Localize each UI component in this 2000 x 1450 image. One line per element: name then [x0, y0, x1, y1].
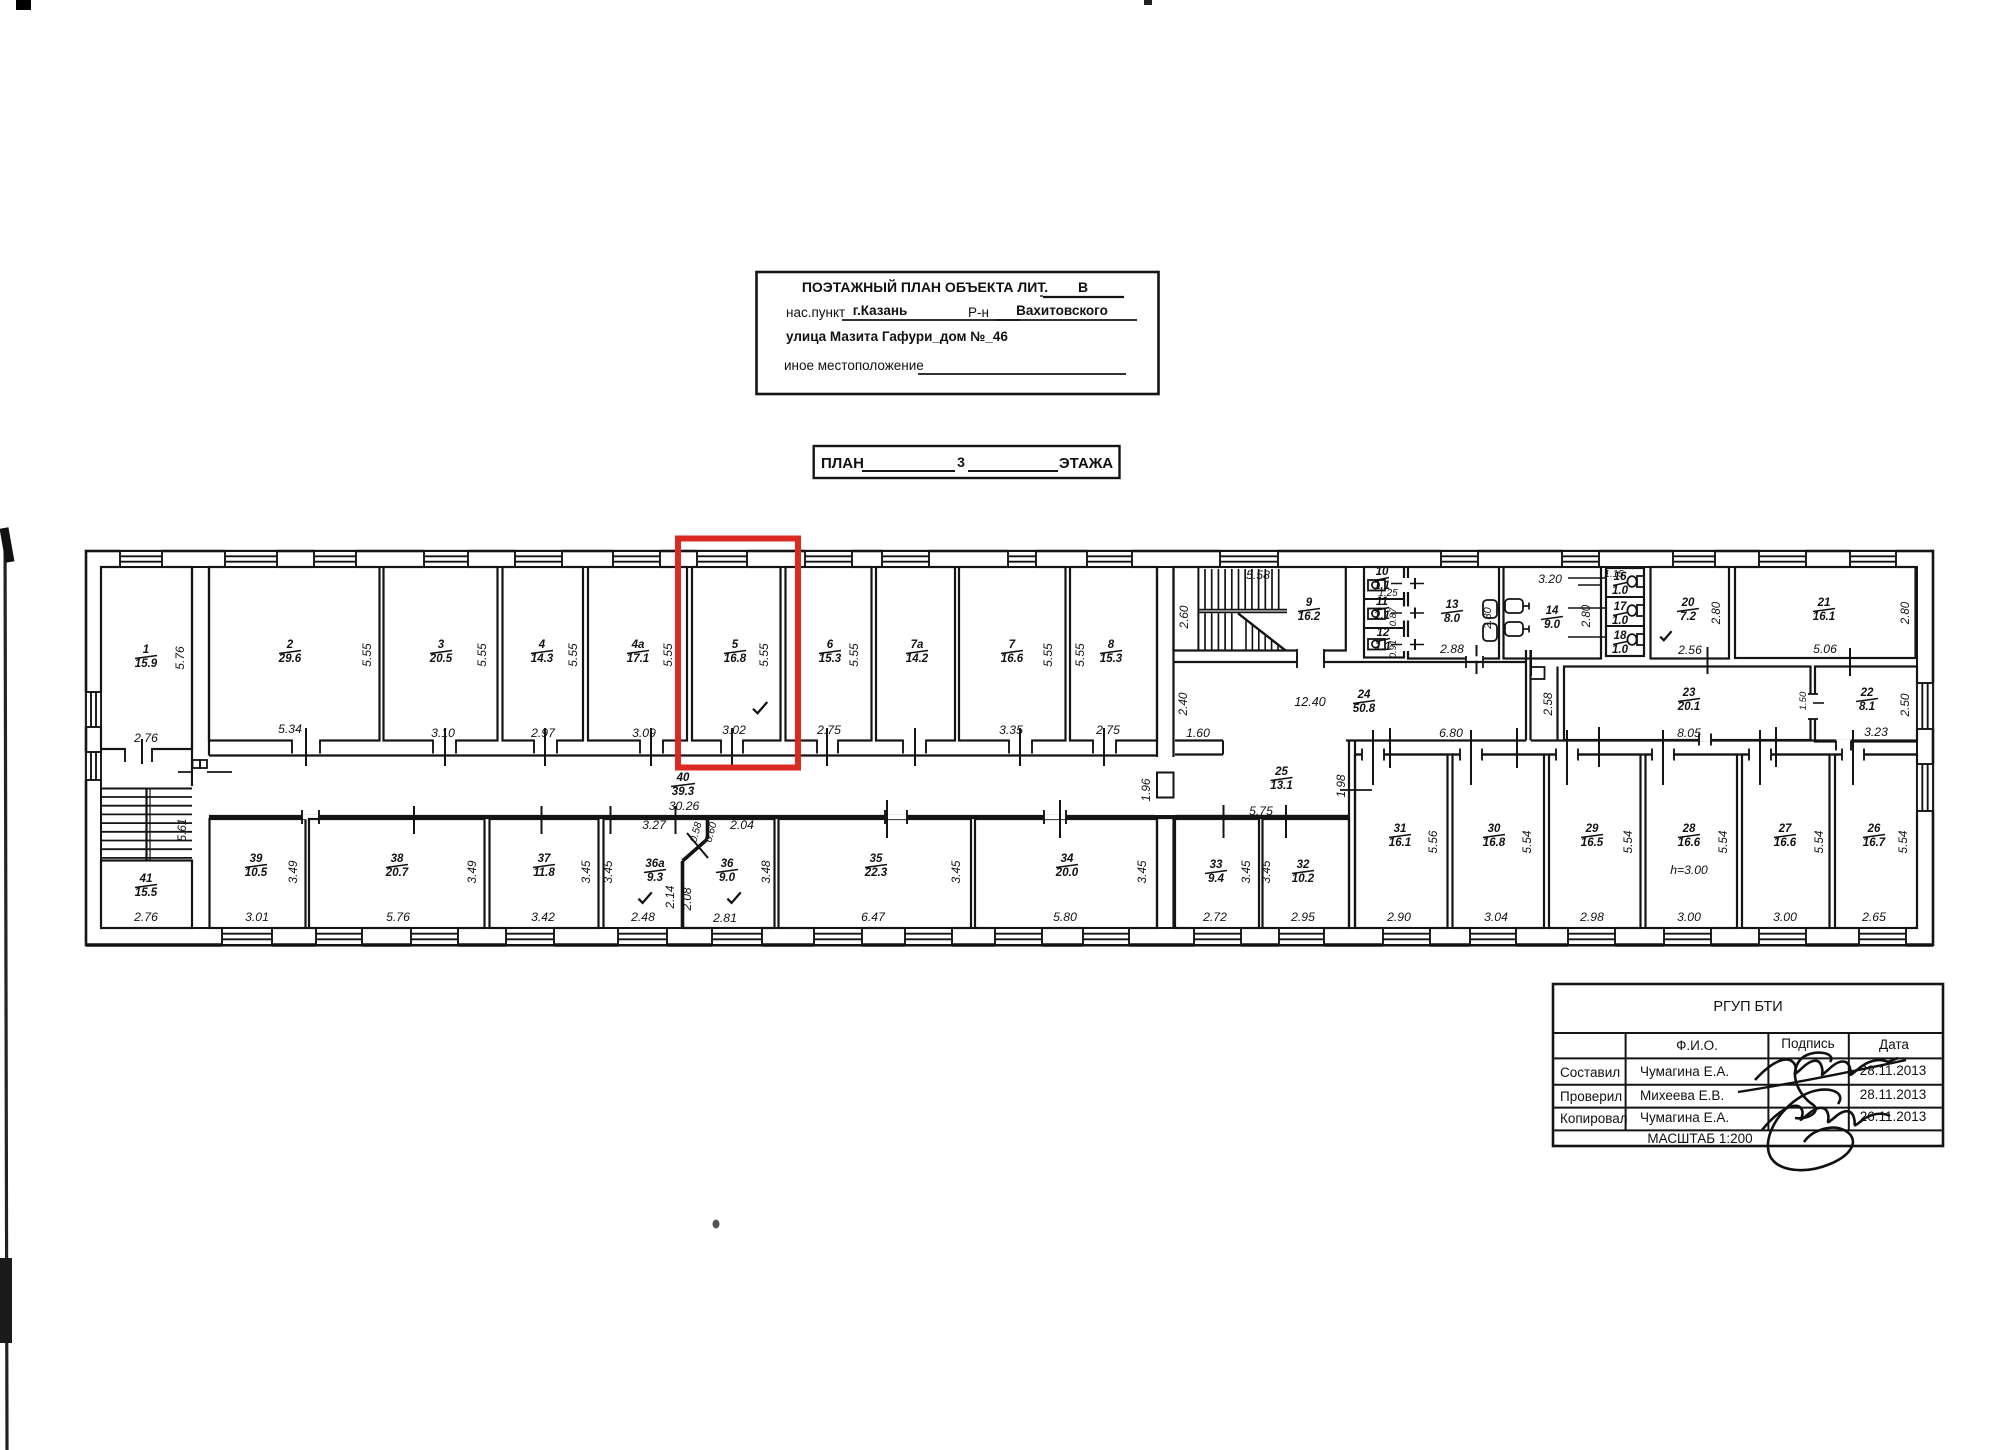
svg-text:8.05: 8.05 [1677, 726, 1701, 740]
svg-text:2.76: 2.76 [133, 731, 158, 745]
svg-text:6: 6 [827, 639, 834, 651]
svg-text:Вахитовского: Вахитовского [1016, 303, 1108, 318]
svg-text:16.1: 16.1 [1813, 611, 1835, 623]
svg-text:Михеева Е.В.: Михеева Е.В. [1640, 1088, 1724, 1103]
svg-text:5.54: 5.54 [1896, 830, 1910, 853]
svg-text:2.81: 2.81 [712, 911, 737, 925]
svg-text:29.6: 29.6 [278, 653, 302, 665]
svg-text:5.80: 5.80 [1053, 910, 1077, 924]
svg-text:20: 20 [1681, 597, 1695, 609]
svg-text:28.11.2013: 28.11.2013 [1860, 1087, 1927, 1102]
svg-text:10.5: 10.5 [245, 867, 268, 879]
svg-text:Ф.И.О.: Ф.И.О. [1676, 1038, 1718, 1053]
svg-text:23: 23 [1682, 687, 1696, 699]
svg-text:5.34: 5.34 [278, 722, 302, 736]
svg-text:1.0: 1.0 [1612, 644, 1629, 656]
svg-text:9.3: 9.3 [647, 872, 664, 884]
svg-text:11: 11 [1376, 596, 1388, 608]
svg-text:7а: 7а [911, 639, 924, 651]
svg-text:3: 3 [438, 639, 445, 651]
svg-text:ЭТАЖА: ЭТАЖА [1059, 455, 1113, 472]
svg-text:иное местоположение: иное местоположение [784, 358, 924, 373]
svg-text:40: 40 [676, 772, 690, 784]
svg-text:9.0: 9.0 [1544, 619, 1561, 631]
svg-text:ПЛАН: ПЛАН [821, 455, 864, 472]
svg-text:3.45: 3.45 [1259, 860, 1273, 883]
svg-text:16.7: 16.7 [1863, 837, 1886, 849]
svg-text:10.2: 10.2 [1292, 873, 1315, 885]
svg-text:16.6: 16.6 [1774, 837, 1797, 849]
svg-text:2.48: 2.48 [630, 910, 655, 924]
svg-text:2.04: 2.04 [729, 818, 754, 832]
svg-text:3.45: 3.45 [601, 860, 615, 883]
svg-text:5.55: 5.55 [475, 643, 489, 667]
svg-text:8.1: 8.1 [1859, 701, 1875, 713]
svg-text:14.2: 14.2 [906, 653, 929, 665]
svg-text:5.55: 5.55 [360, 643, 374, 667]
svg-text:h=3.00: h=3.00 [1670, 863, 1708, 877]
svg-text:28: 28 [1682, 823, 1696, 835]
svg-text:41: 41 [139, 873, 153, 885]
svg-text:2.80: 2.80 [1482, 606, 1494, 629]
svg-text:16.8: 16.8 [724, 653, 747, 665]
svg-text:37: 37 [538, 853, 551, 865]
svg-text:5.06: 5.06 [1813, 642, 1837, 656]
svg-text:9.0: 9.0 [719, 872, 736, 884]
svg-text:г.Казань: г.Казань [853, 303, 908, 318]
svg-text:24: 24 [1357, 689, 1371, 701]
svg-text:Чумагина Е.А.: Чумагина Е.А. [1640, 1064, 1729, 1079]
svg-text:6.80: 6.80 [1439, 726, 1463, 740]
svg-text:2.88: 2.88 [1439, 642, 1464, 656]
svg-text:28.11.2013: 28.11.2013 [1860, 1063, 1927, 1078]
svg-text:2.95: 2.95 [1290, 910, 1315, 924]
svg-text:2.90: 2.90 [1386, 910, 1411, 924]
svg-text:8.0: 8.0 [1444, 613, 1461, 625]
svg-text:5.56: 5.56 [1426, 830, 1440, 853]
svg-text:9: 9 [1306, 597, 1313, 609]
svg-text:3.20: 3.20 [1538, 572, 1562, 586]
svg-text:14.3: 14.3 [531, 653, 554, 665]
svg-text:15.9: 15.9 [135, 658, 158, 670]
svg-text:нас.пункт: нас.пункт [786, 305, 845, 320]
svg-text:Р-н: Р-н [968, 305, 989, 320]
svg-text:3.23: 3.23 [1864, 725, 1888, 739]
svg-text:31: 31 [1394, 823, 1407, 835]
svg-text:РГУП БТИ: РГУП БТИ [1713, 999, 1782, 1015]
svg-text:Дата: Дата [1879, 1037, 1909, 1052]
svg-text:Подпись: Подпись [1781, 1036, 1834, 1051]
svg-text:16.2: 16.2 [1298, 611, 1321, 623]
svg-text:30: 30 [1488, 823, 1501, 835]
svg-text:3.48: 3.48 [759, 860, 773, 883]
svg-text:2.80: 2.80 [1711, 601, 1723, 625]
svg-text:4а: 4а [631, 639, 645, 651]
svg-text:5.58: 5.58 [1246, 568, 1270, 582]
svg-text:1.98: 1.98 [1334, 774, 1348, 797]
svg-text:33: 33 [1210, 859, 1223, 871]
svg-text:3.09: 3.09 [632, 726, 656, 740]
svg-text:2.97: 2.97 [530, 726, 556, 740]
svg-text:18: 18 [1614, 630, 1627, 642]
svg-text:0.87: 0.87 [1388, 607, 1399, 626]
svg-text:1.96: 1.96 [1139, 778, 1153, 801]
svg-text:16.8: 16.8 [1483, 837, 1506, 849]
svg-text:20.5: 20.5 [429, 653, 453, 665]
svg-text:0.91: 0.91 [1388, 640, 1399, 659]
svg-text:2.08: 2.08 [680, 887, 694, 911]
svg-text:34: 34 [1061, 853, 1074, 865]
svg-text:16.1: 16.1 [1389, 837, 1411, 849]
svg-text:5.55: 5.55 [661, 643, 675, 667]
svg-text:30.26: 30.26 [669, 799, 700, 813]
svg-text:16: 16 [1614, 571, 1627, 583]
svg-text:9.4: 9.4 [1208, 873, 1225, 885]
svg-text:7.2: 7.2 [1680, 611, 1697, 623]
svg-text:1.0: 1.0 [1612, 585, 1629, 597]
svg-text:В: В [1078, 279, 1088, 295]
svg-text:25: 25 [1274, 766, 1288, 778]
svg-text:2.50: 2.50 [1898, 693, 1912, 717]
svg-text:Копировал: Копировал [1560, 1111, 1628, 1126]
svg-text:10: 10 [1376, 566, 1389, 578]
svg-text:21: 21 [1817, 597, 1831, 609]
svg-text:15.5: 15.5 [135, 887, 158, 899]
svg-text:Проверил: Проверил [1560, 1089, 1622, 1104]
svg-text:20.7: 20.7 [385, 867, 409, 879]
svg-text:36: 36 [721, 858, 734, 870]
svg-text:2.58: 2.58 [1541, 692, 1555, 716]
svg-text:7: 7 [1009, 639, 1016, 651]
svg-text:3.45: 3.45 [1239, 860, 1253, 883]
svg-text:2.14: 2.14 [663, 885, 677, 909]
svg-text:15.3: 15.3 [819, 653, 842, 665]
svg-text:12: 12 [1377, 627, 1390, 639]
svg-text:5.55: 5.55 [566, 643, 580, 667]
svg-text:29: 29 [1585, 823, 1599, 835]
svg-text:17: 17 [1614, 601, 1627, 613]
svg-text:2.56: 2.56 [1677, 643, 1702, 657]
svg-text:13.1: 13.1 [1270, 780, 1292, 792]
svg-text:1.0: 1.0 [1612, 615, 1629, 627]
svg-text:5.55: 5.55 [757, 643, 771, 667]
svg-text:11.8: 11.8 [533, 867, 555, 879]
svg-text:50.8: 50.8 [1353, 703, 1376, 715]
svg-text:2.60: 2.60 [1177, 605, 1191, 629]
svg-text:1.60: 1.60 [1186, 726, 1210, 740]
svg-text:2.98: 2.98 [1579, 910, 1604, 924]
svg-text:3.45: 3.45 [949, 860, 963, 883]
svg-text:5.55: 5.55 [1073, 643, 1087, 667]
svg-text:20.0: 20.0 [1055, 867, 1079, 879]
svg-text:3.04: 3.04 [1484, 910, 1508, 924]
svg-text:38: 38 [391, 853, 404, 865]
svg-text:6.47: 6.47 [861, 910, 886, 924]
svg-text:27: 27 [1778, 823, 1792, 835]
svg-text:3.10: 3.10 [431, 726, 455, 740]
svg-text:26: 26 [1867, 823, 1881, 835]
svg-text:Чумагина Е.А.: Чумагина Е.А. [1640, 1110, 1729, 1125]
svg-text:2: 2 [286, 639, 294, 651]
svg-text:1.50: 1.50 [1798, 691, 1809, 710]
svg-text:2.72: 2.72 [1202, 910, 1227, 924]
svg-text:4: 4 [538, 639, 546, 651]
svg-text:1: 1 [143, 644, 149, 656]
svg-text:5: 5 [732, 639, 739, 651]
svg-text:улица Мазита Гафури_дом №_46: улица Мазита Гафури_дом №_46 [786, 329, 1008, 344]
svg-text:14: 14 [1546, 605, 1559, 617]
svg-text:3.00: 3.00 [1773, 910, 1797, 924]
svg-text:2.80: 2.80 [1900, 601, 1912, 625]
svg-text:36а: 36а [645, 858, 665, 870]
svg-text:5.55: 5.55 [847, 643, 861, 667]
svg-text:39: 39 [250, 853, 263, 865]
svg-text:22: 22 [1860, 687, 1874, 699]
svg-text:5.55: 5.55 [1041, 643, 1055, 667]
svg-text:5.54: 5.54 [1520, 830, 1534, 853]
svg-text:2.75: 2.75 [1095, 723, 1120, 737]
svg-text:16.5: 16.5 [1581, 837, 1604, 849]
svg-text:22.3: 22.3 [864, 867, 888, 879]
svg-text:5.76: 5.76 [386, 910, 410, 924]
svg-text:2.75: 2.75 [816, 723, 841, 737]
svg-text:5.61: 5.61 [175, 819, 189, 842]
svg-text:3: 3 [957, 454, 965, 470]
svg-text:2.40: 2.40 [1176, 692, 1190, 716]
svg-text:12.40: 12.40 [1294, 695, 1325, 709]
svg-text:17.1: 17.1 [627, 653, 649, 665]
svg-text:5.76: 5.76 [173, 646, 187, 670]
svg-text:3.49: 3.49 [465, 860, 479, 883]
svg-text:3.49: 3.49 [286, 860, 300, 883]
svg-text:5.54: 5.54 [1621, 830, 1635, 853]
svg-text:2.65: 2.65 [1861, 910, 1886, 924]
svg-text:32: 32 [1297, 859, 1310, 871]
svg-text:5.54: 5.54 [1812, 830, 1826, 853]
svg-text:15.3: 15.3 [1100, 653, 1123, 665]
svg-text:8: 8 [1108, 639, 1115, 651]
svg-text:13: 13 [1446, 599, 1459, 611]
svg-text:3.00: 3.00 [1677, 910, 1701, 924]
svg-text:16.6: 16.6 [1678, 837, 1701, 849]
svg-text:ПОЭТАЖНЫЙ ПЛАН ОБЪЕКТА ЛИТ.: ПОЭТАЖНЫЙ ПЛАН ОБЪЕКТА ЛИТ. [802, 278, 1048, 295]
svg-text:35: 35 [870, 853, 883, 865]
svg-text:Составил: Составил [1560, 1065, 1620, 1080]
svg-text:39.3: 39.3 [672, 786, 695, 798]
svg-text:16.6: 16.6 [1001, 653, 1024, 665]
svg-text:3.02: 3.02 [722, 723, 746, 737]
svg-text:3.27: 3.27 [642, 818, 667, 832]
svg-text:МАСШТАБ 1:200: МАСШТАБ 1:200 [1647, 1131, 1752, 1146]
svg-text:3.01: 3.01 [245, 910, 269, 924]
svg-text:3.42: 3.42 [531, 910, 555, 924]
svg-text:5.54: 5.54 [1716, 830, 1730, 853]
svg-text:3.45: 3.45 [1135, 860, 1149, 883]
svg-text:2.76: 2.76 [133, 910, 158, 924]
svg-text:3.45: 3.45 [579, 860, 593, 883]
svg-text:20.1: 20.1 [1677, 701, 1700, 713]
